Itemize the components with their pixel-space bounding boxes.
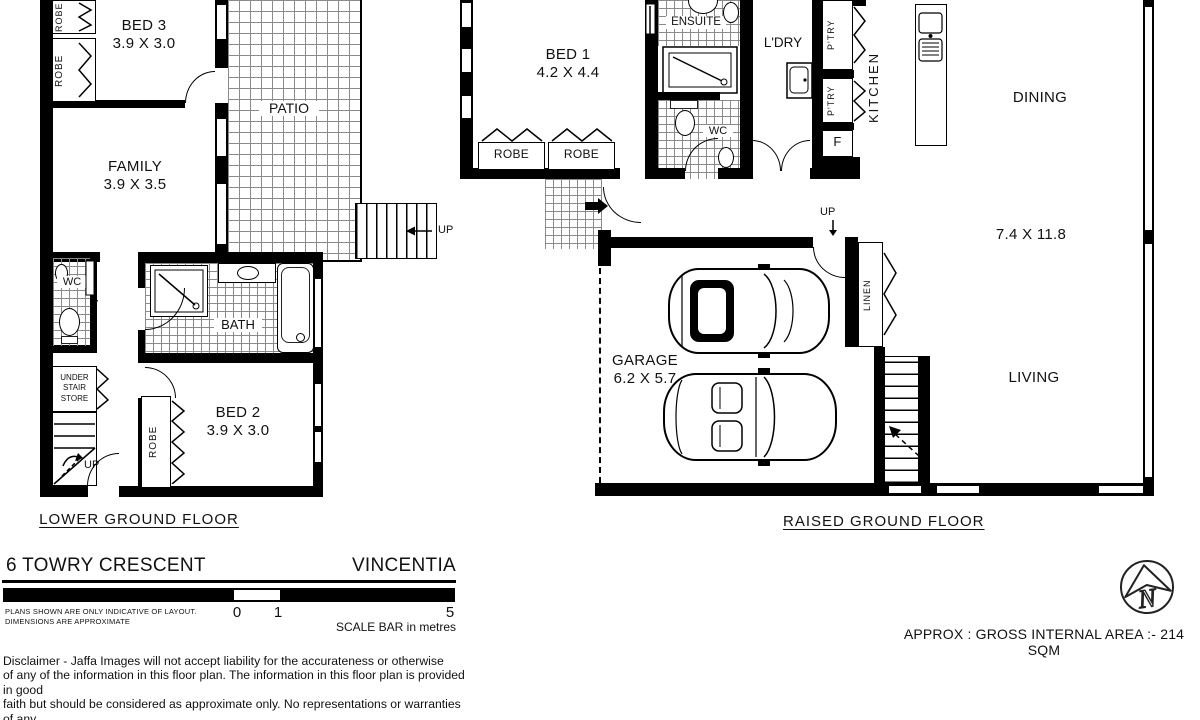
sink-icon — [917, 12, 945, 62]
up-label: UP — [818, 206, 837, 218]
window — [461, 48, 472, 73]
up-arrow-icon — [404, 224, 434, 238]
curved-arrow-icon — [60, 450, 84, 468]
scale-tick: 5 — [441, 604, 459, 621]
window — [314, 431, 322, 463]
room-label-bed2: BED 2 3.9 X 3.0 — [188, 404, 288, 440]
bathtub-inner — [281, 267, 310, 343]
wall — [812, 0, 822, 168]
disclaimer-line: faith but should be considered as approx… — [3, 697, 473, 720]
pantry-label: P'TRY — [826, 82, 836, 120]
window — [216, 118, 227, 157]
sliding-door-icon — [644, 4, 658, 50]
door-arc — [185, 71, 215, 103]
room-label-wc: WC — [57, 276, 87, 288]
drain-icon — [296, 333, 305, 342]
room-label-ensuite: ENSUITE — [666, 16, 726, 29]
wall — [138, 353, 320, 363]
door-arc — [752, 140, 781, 171]
wall — [40, 486, 88, 497]
door-arc — [781, 140, 810, 171]
wall — [1143, 230, 1154, 244]
room-dims: 3.9 X 3.0 — [94, 35, 194, 53]
scale-caption: SCALE BAR in metres — [320, 620, 456, 634]
wall — [818, 123, 854, 130]
lower-floor-title: LOWER GROUND FLOOR — [39, 511, 239, 528]
note-line: PLANS SHOWN ARE ONLY INDICATIVE OF LAYOU… — [5, 607, 235, 617]
suburb-text: VINCENTIA — [256, 555, 456, 577]
window — [936, 485, 980, 494]
room-label-patio: PATIO — [259, 101, 319, 116]
robe-label: ROBE — [478, 147, 545, 161]
room-label-living: LIVING — [998, 369, 1070, 387]
wall — [598, 230, 611, 266]
closet-door-icon — [78, 2, 94, 32]
room-label-dining: DINING — [1003, 89, 1077, 107]
closet-door-icon — [171, 400, 187, 484]
closet-door-icon — [96, 368, 111, 410]
window — [314, 278, 322, 348]
room-label-ldry: L'DRY — [755, 36, 811, 51]
toilet-icon — [675, 110, 695, 136]
toilet-tank — [61, 336, 78, 344]
wall — [600, 237, 813, 248]
plan-notes: PLANS SHOWN ARE ONLY INDICATIVE OF LAYOU… — [5, 607, 235, 627]
room-name: BED 2 — [188, 404, 288, 422]
raised-floor-title: RAISED GROUND FLOOR — [783, 513, 983, 530]
scale-bar-segment — [234, 590, 280, 600]
robe-label: ROBE — [548, 147, 615, 161]
scale-tick: 1 — [269, 604, 287, 621]
pantry-label: P'TRY — [826, 10, 836, 60]
fridge-label: F — [822, 134, 853, 150]
closet-door-icon — [551, 127, 613, 142]
closet-door-icon — [78, 42, 94, 98]
shower-icon — [662, 46, 738, 94]
window — [314, 383, 322, 427]
window — [216, 183, 227, 245]
area-text: APPROX : GROSS INTERNAL AREA :- 214 SQM — [893, 626, 1195, 658]
stairs-arrow — [877, 412, 925, 460]
disclaimer-text: Disclaimer - Jaffa Images will not accep… — [3, 654, 473, 720]
closet-door-icon — [883, 252, 899, 336]
car-icon — [660, 367, 840, 467]
window — [461, 95, 472, 119]
window — [888, 485, 922, 494]
linen-label: LINEN — [862, 262, 872, 328]
wall — [658, 92, 720, 100]
window — [216, 4, 227, 40]
open-area-dims: 7.4 X 11.8 — [991, 226, 1071, 244]
down-arrow-icon — [827, 219, 839, 237]
room-name: BED 3 — [94, 17, 194, 35]
note-line: DIMENSIONS ARE APPROXIMATE — [5, 617, 235, 627]
wall — [845, 237, 858, 347]
understair-label: UNDER STAIR STORE — [54, 373, 95, 404]
toilet-tank — [670, 100, 698, 109]
window — [461, 2, 472, 28]
room-dims: 3.9 X 3.0 — [188, 422, 288, 440]
wall — [595, 483, 1154, 496]
robe-label: ROBE — [148, 414, 159, 470]
wall — [52, 345, 97, 353]
door-arc — [603, 187, 641, 223]
room-dims: 4.2 X 4.4 — [518, 64, 618, 82]
robe-label: ROBE — [54, 2, 64, 32]
room-dims: 3.9 X 3.5 — [85, 176, 185, 194]
wall — [810, 168, 860, 179]
window — [1098, 485, 1144, 494]
understair-line: UNDER — [54, 373, 95, 383]
room-label-kitchen: KITCHEN — [866, 42, 881, 132]
understair-line: STAIR — [54, 383, 95, 393]
robe-label: ROBE — [54, 46, 65, 96]
up-label: UP — [436, 224, 455, 236]
wall — [138, 263, 145, 288]
wall — [655, 168, 685, 179]
disclaimer-line: of any of the information in this floor … — [3, 668, 473, 697]
room-name: BED 1 — [518, 46, 618, 64]
floorplan-canvas: ROBE ROBE BED 3 3.9 X 3.0 FAMILY 3.9 X 3… — [0, 0, 1200, 720]
door-opening — [215, 68, 228, 103]
room-label-bed3: BED 3 3.9 X 3.0 — [94, 17, 194, 53]
north-arrow-icon: N — [1116, 558, 1178, 618]
wall — [1143, 0, 1154, 7]
room-label-wc2: WC — [703, 125, 733, 137]
patio-tiles — [228, 0, 360, 262]
door-arc — [145, 367, 176, 398]
basin-icon — [237, 266, 259, 280]
sliding-door-icon — [85, 260, 99, 310]
wall — [818, 70, 854, 78]
car-icon — [666, 262, 834, 360]
toilet-icon — [59, 308, 80, 336]
wall — [718, 168, 752, 179]
wall — [815, 157, 860, 168]
disclaimer-line: Disclaimer - Jaffa Images will not accep… — [3, 654, 473, 668]
room-label-bath: BATH — [214, 318, 262, 332]
laundry-tub-icon — [786, 62, 813, 99]
closet-door-icon — [481, 127, 543, 142]
room-label-bed1: BED 1 4.2 X 4.4 — [518, 46, 618, 82]
divider-line — [2, 580, 456, 583]
understair-line: STORE — [54, 394, 95, 404]
basin-icon — [723, 2, 739, 23]
room-label-family: FAMILY 3.9 X 3.5 — [85, 158, 185, 194]
basin-icon — [718, 147, 734, 168]
scale-bar — [3, 588, 455, 602]
room-name: FAMILY — [85, 158, 185, 176]
window-wall — [1143, 0, 1154, 490]
